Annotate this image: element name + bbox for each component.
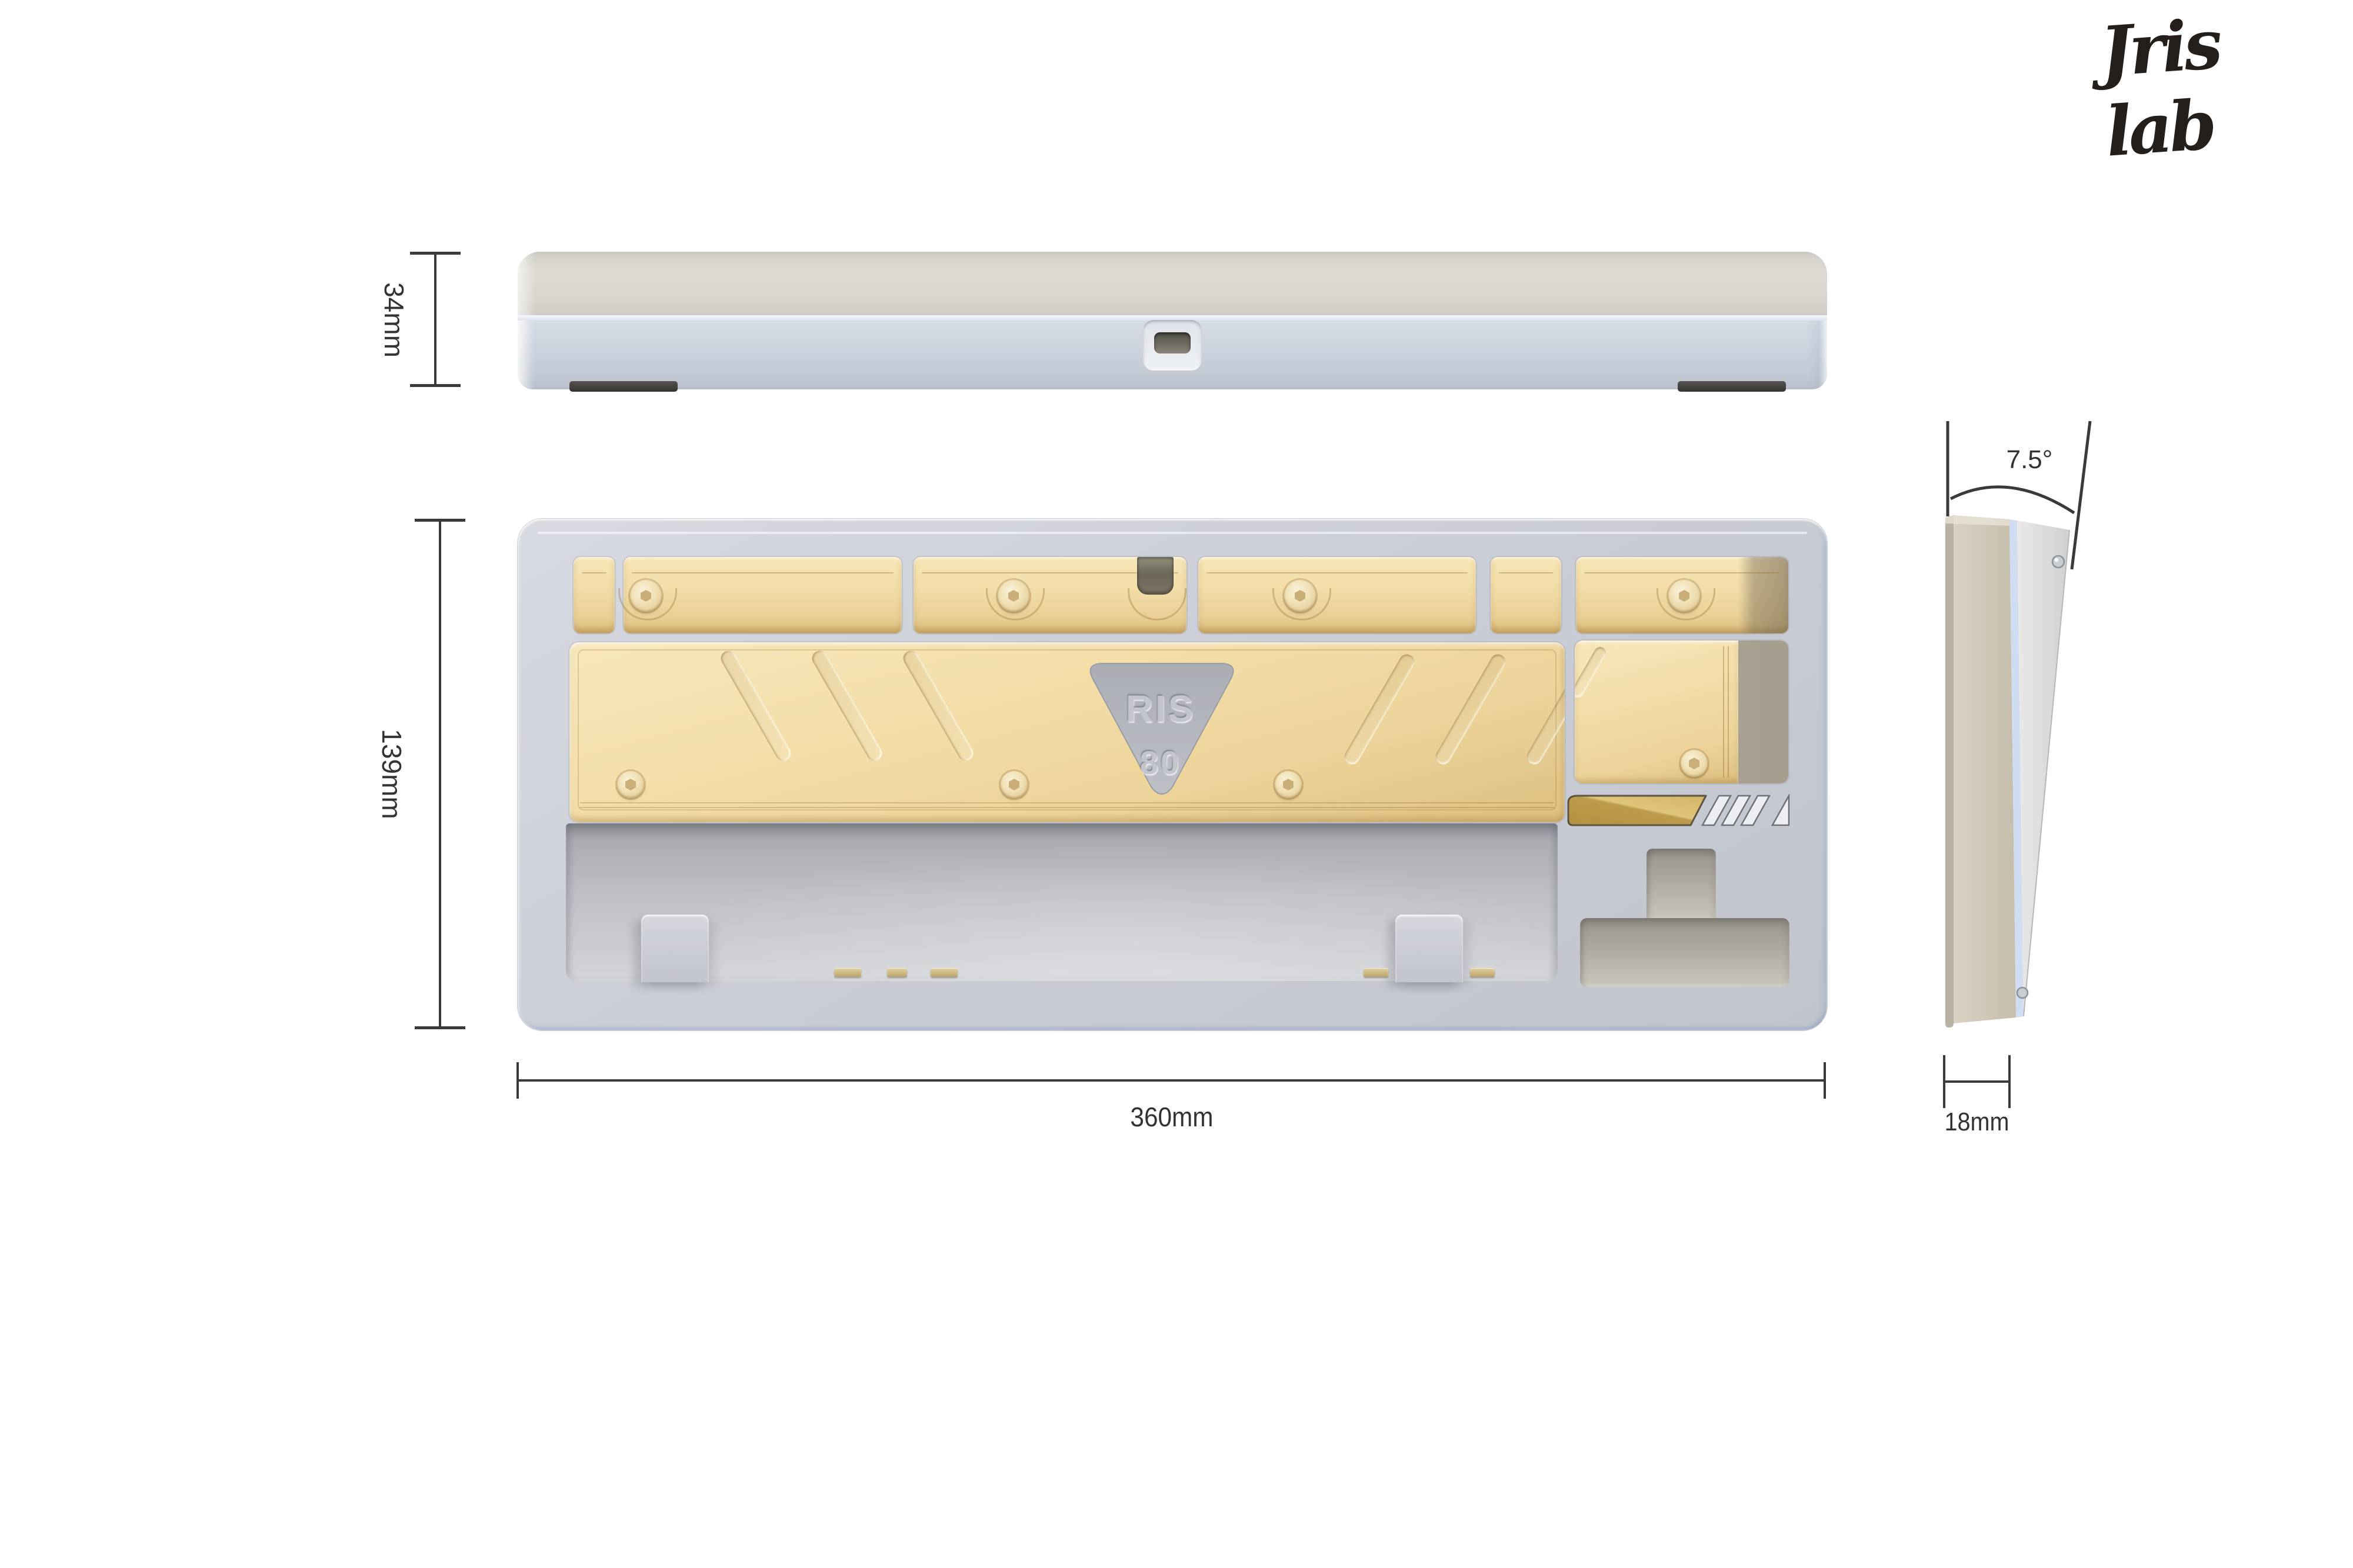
side-sloped-top-face xyxy=(2017,521,2069,1016)
usb-c-port-icon xyxy=(1154,332,1191,353)
floor-tab-left xyxy=(641,915,709,982)
angle-annotation xyxy=(1929,412,2106,588)
badge-and-hazard-stripes xyxy=(1565,794,1800,827)
screw-boss-icon xyxy=(1275,771,1302,798)
hazard-stripe-icon xyxy=(1772,796,1789,825)
floor-tab-right xyxy=(1395,915,1463,982)
rubber-foot-right xyxy=(1678,381,1786,392)
right-brass-plate xyxy=(1575,640,1738,783)
engraved-line xyxy=(1723,646,1724,778)
screw-boss-icon xyxy=(1681,750,1708,777)
engraved-slash xyxy=(718,648,794,764)
case-rim-highlight xyxy=(538,532,1807,534)
brand-logo: Jris lab xyxy=(2099,14,2342,154)
screw-boss-icon xyxy=(617,771,644,798)
top-case-band xyxy=(518,252,1827,315)
engraved-slash xyxy=(1524,652,1565,768)
screw-boss-icon xyxy=(1284,580,1316,612)
dim-360-line xyxy=(516,1079,1826,1082)
engraved-line xyxy=(1728,646,1729,778)
top-pocket-5 xyxy=(1491,557,1561,633)
gold-contact-pad xyxy=(1470,968,1495,977)
plate-logo-text: RIS xyxy=(1108,687,1214,730)
gold-badge-bar xyxy=(1568,796,1706,825)
engraved-slash xyxy=(1575,645,1608,699)
dim-139-cap-top xyxy=(415,519,465,522)
engraved-slash xyxy=(901,648,976,764)
dim-18-label: 18mm xyxy=(1933,1108,2021,1136)
angle-label: 7.5° xyxy=(1994,445,2065,475)
side-case-face xyxy=(1954,515,2016,1023)
dim-34-line xyxy=(434,253,436,386)
engraved-slash xyxy=(1433,652,1509,768)
engraved-slash xyxy=(809,648,885,764)
usb-cutout xyxy=(1137,557,1174,595)
gold-contact-pad xyxy=(834,968,861,977)
pocket-shadow xyxy=(1738,557,1788,633)
internal-top-view-case: RIS 80 xyxy=(518,519,1827,1030)
plate-logo-number: 80 xyxy=(1119,743,1202,782)
side-screw-icon xyxy=(2017,987,2028,998)
screw-boss-icon xyxy=(1001,771,1028,798)
angle-slope-line xyxy=(2072,421,2090,569)
engraved-slash xyxy=(1342,652,1418,768)
dim-34-cap-bottom xyxy=(410,384,461,387)
top-pocket-4 xyxy=(1198,557,1476,633)
rubber-foot-left xyxy=(569,381,678,392)
dim-360-label: 360mm xyxy=(1096,1102,1248,1132)
dim-18-line xyxy=(1943,1080,2011,1083)
technical-drawing-canvas: Jris lab 34mm xyxy=(0,0,2353,1568)
gold-contact-pad xyxy=(1364,968,1388,977)
screw-boss-icon xyxy=(998,580,1029,612)
right-brass-pocket xyxy=(1575,640,1788,783)
dim-34-label: 34mm xyxy=(378,255,410,385)
angle-arc xyxy=(1951,487,2074,513)
gold-contact-pad xyxy=(887,968,907,977)
dim-139-cap-bottom xyxy=(415,1026,465,1029)
t-cutout-base xyxy=(1580,918,1789,987)
screw-boss-icon xyxy=(1668,580,1700,612)
t-cutout-stem xyxy=(1647,849,1716,920)
dim-34-cap-top xyxy=(410,252,461,255)
plate-engraved-line xyxy=(580,807,1554,808)
usb-port-recess xyxy=(1143,320,1202,371)
side-bottom-edge xyxy=(1945,515,1954,1027)
screw-boss-icon xyxy=(630,580,662,612)
plate-engraved-line xyxy=(580,802,1554,803)
dim-139-label: 139mm xyxy=(376,709,408,839)
brass-weight-plate: RIS 80 xyxy=(569,642,1565,822)
dim-139-line xyxy=(439,520,441,1029)
rear-view-case xyxy=(518,252,1827,389)
top-pocket-1 xyxy=(574,557,615,633)
case-floor-recess xyxy=(566,823,1558,981)
gold-contact-pad xyxy=(931,968,958,977)
triangle-logo-cutout xyxy=(1079,660,1244,805)
